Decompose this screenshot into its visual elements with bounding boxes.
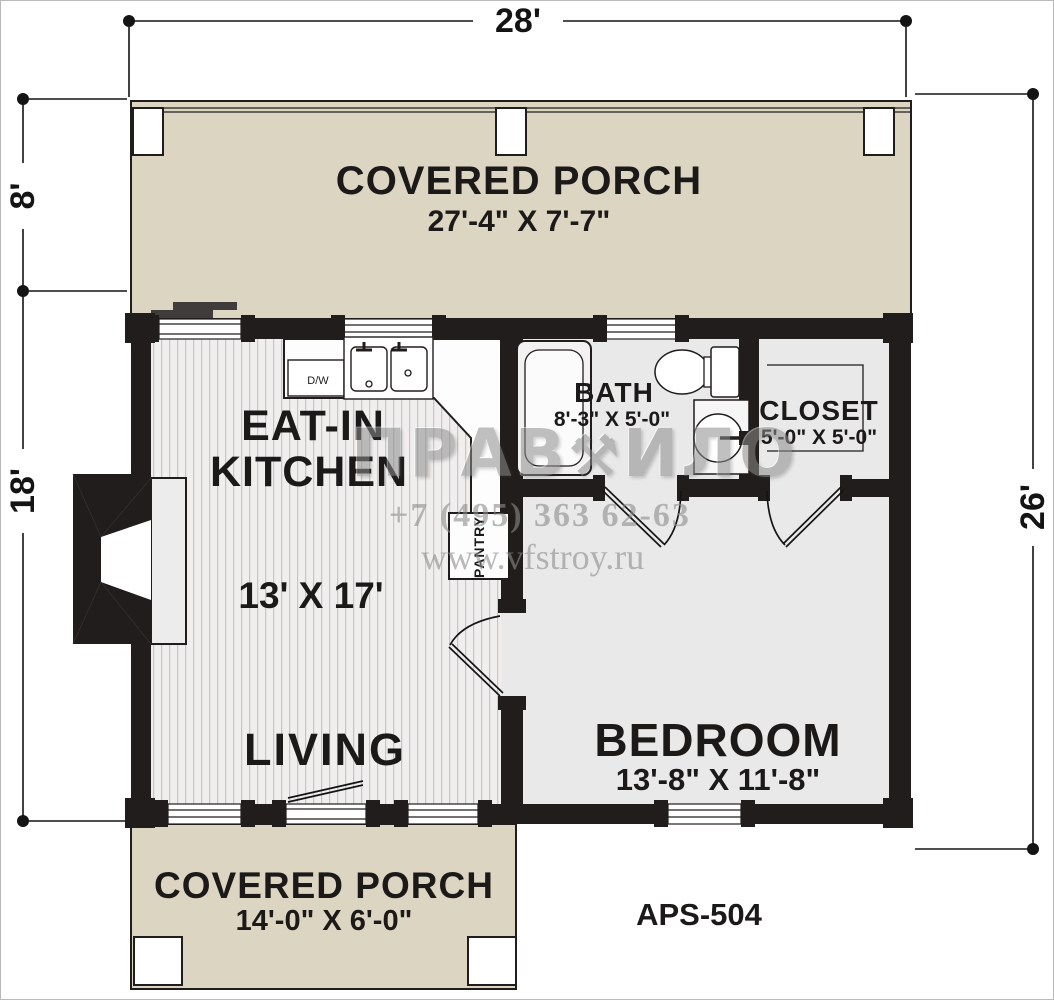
dishwasher-label: D/W (307, 376, 328, 387)
kitchen-window (344, 319, 433, 339)
bath-window (606, 319, 676, 339)
bath-label: BATH (574, 379, 654, 407)
bedroom-window (668, 804, 741, 824)
porch-post (133, 108, 163, 155)
porch-bottom-label: COVERED PORCH (154, 867, 494, 904)
porch-post (468, 937, 516, 985)
porch-steps (173, 302, 237, 310)
bath-size: 8'-3" X 5'-0" (554, 409, 670, 430)
porch-bottom-size: 14'-0" X 6'-0" (236, 907, 413, 936)
kitchen-label-line2: KITCHEN (210, 451, 408, 494)
living-porch-door (286, 804, 366, 824)
kitchen-porch-door (159, 319, 241, 339)
dimension-right: 26' (1016, 478, 1050, 536)
fireplace (73, 474, 186, 644)
pantry-label: PANTRY (472, 516, 486, 578)
bedroom-size: 13'-8" X 11'-8" (616, 764, 820, 795)
toilet (655, 347, 739, 397)
porch-top-label: COVERED PORCH (336, 161, 702, 201)
bedroom-label: BEDROOM (594, 717, 841, 763)
closet-label: CLOSET (759, 397, 879, 425)
kitchen-sink (344, 337, 433, 399)
living-label: LIVING (244, 727, 406, 772)
porch-post (134, 937, 182, 985)
floor-plan-drawing (1, 1, 1054, 1000)
porch-post (864, 108, 894, 155)
porch-post (496, 108, 526, 155)
kitchen-size: 13' X 17' (238, 577, 383, 614)
kitchen-label-line1: EAT-IN (241, 405, 385, 448)
closet-size: 5'-0" X 5'-0" (761, 427, 877, 448)
living-window-left (168, 804, 241, 824)
living-window-right (408, 804, 478, 824)
porch-steps (151, 310, 213, 318)
dimension-left-lower: 18' (6, 462, 40, 520)
dimension-top: 28' (489, 4, 547, 38)
porch-top-size: 27'-4" X 7'-7" (428, 207, 611, 237)
plan-number: APS-504 (636, 899, 762, 930)
floor-plan-canvas: COVERED PORCH 27'-4" X 7'-7" EAT-IN KITC… (0, 0, 1054, 1000)
bath-sink (694, 400, 749, 474)
dimension-left-upper: 8' (6, 177, 40, 216)
